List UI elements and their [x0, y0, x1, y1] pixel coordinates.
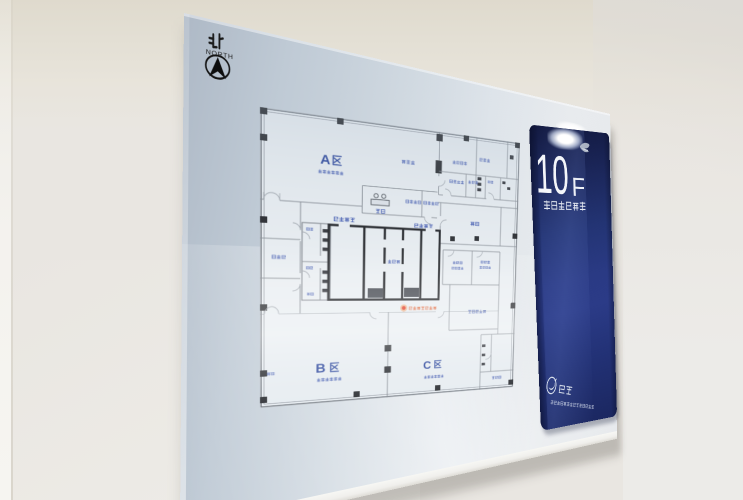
svg-text:10: 10 — [534, 142, 569, 205]
svg-text:NORTH: NORTH — [206, 48, 234, 61]
svg-text:F: F — [571, 173, 585, 202]
